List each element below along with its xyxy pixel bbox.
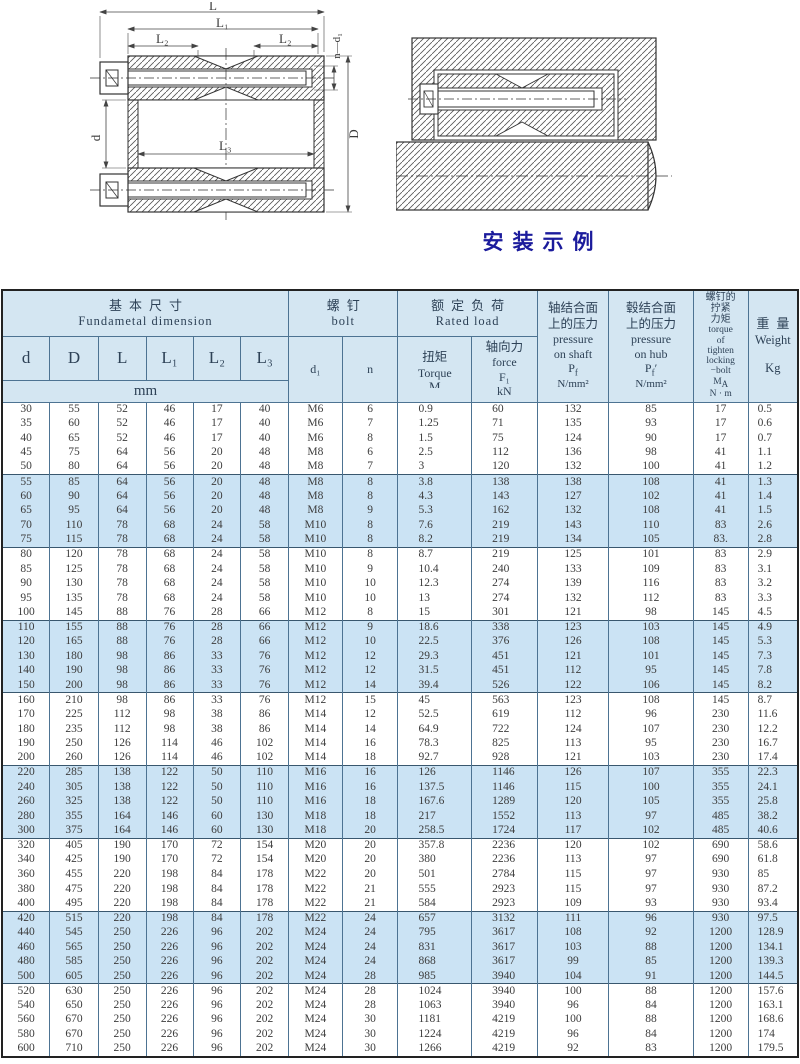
cell: 18 (342, 751, 398, 766)
cell: 560 (2, 1013, 50, 1028)
cell: 225 (50, 707, 99, 722)
cell: 80 (2, 547, 50, 562)
cell: 690 (693, 853, 748, 868)
cell: 145 (693, 606, 748, 621)
cell: 1.1 (748, 446, 798, 461)
cell: 2.8 (748, 533, 798, 548)
cell: M14 (289, 722, 343, 737)
cell: 160 (2, 693, 50, 708)
cell: 501 (398, 868, 472, 883)
cell: 30 (2, 402, 50, 417)
cell: 202 (241, 926, 289, 941)
cell: 202 (241, 940, 289, 955)
cell: 320 (2, 838, 50, 853)
cell: 3940 (472, 998, 538, 1013)
cell: 5.3 (398, 504, 472, 519)
cell: 985 (398, 969, 472, 984)
cell: 3132 (472, 911, 538, 926)
cell: 440 (2, 926, 50, 941)
cell: 64 (98, 489, 146, 504)
table-row: 40049522019884178M222158429231099393093.… (2, 897, 798, 912)
cell: 114 (146, 751, 193, 766)
table-row: 170225112983886M141252.56191129623011.6 (2, 707, 798, 722)
cell: 68 (146, 547, 193, 562)
cell: 33 (193, 649, 241, 664)
cell: 128.9 (748, 926, 798, 941)
cell: 226 (146, 969, 193, 984)
cell: 96 (193, 1028, 241, 1043)
cell: M12 (289, 664, 343, 679)
cell: 95 (2, 591, 50, 606)
cell: M22 (289, 882, 343, 897)
cell: 138 (98, 780, 146, 795)
cell: 90 (609, 431, 693, 446)
cell: 250 (98, 984, 146, 999)
cell: 226 (146, 955, 193, 970)
cell: 64 (98, 504, 146, 519)
cell: 112 (98, 707, 146, 722)
cell: 145 (693, 664, 748, 679)
cell: 1200 (693, 926, 748, 941)
cell: 138 (472, 475, 538, 490)
cell: 357.8 (398, 838, 472, 853)
cell: 110 (241, 766, 289, 781)
cell: 670 (50, 1028, 99, 1043)
cell: 35 (2, 417, 50, 432)
cell: 98 (146, 707, 193, 722)
cell: M20 (289, 838, 343, 853)
cell: 93 (609, 417, 693, 432)
cell: 33 (193, 678, 241, 693)
table-row: 7511578682458M1088.221913410583.2.8 (2, 533, 798, 548)
cell: 75 (2, 533, 50, 548)
cell: 48 (241, 504, 289, 519)
cell: 178 (241, 897, 289, 912)
cell: 96 (193, 1042, 241, 1057)
cell: 100 (537, 1013, 609, 1028)
cell: 2923 (472, 897, 538, 912)
cell: M16 (289, 766, 343, 781)
dim-label-L3: L₃ (219, 138, 231, 153)
cell: M22 (289, 911, 343, 926)
cell: 250 (98, 1013, 146, 1028)
cell: 88 (98, 620, 146, 635)
cell: 68 (146, 591, 193, 606)
cell: 46 (193, 751, 241, 766)
cell: M10 (289, 591, 343, 606)
cell: 1146 (472, 780, 538, 795)
cell: 3940 (472, 969, 538, 984)
cell: 174 (748, 1028, 798, 1043)
cell: 143 (472, 489, 538, 504)
cell: 132 (537, 402, 609, 417)
cell: M12 (289, 606, 343, 621)
cell: 3.3 (748, 591, 798, 606)
table-row: 16021098863376M1215455631231081458.7 (2, 693, 798, 708)
cell: 121 (537, 751, 609, 766)
cell: M24 (289, 926, 343, 941)
dim-label-d: d (88, 134, 103, 141)
table-row: 19025012611446102M141678.38251139523016.… (2, 737, 798, 752)
cell: 76 (241, 649, 289, 664)
table-row: 42051522019884178M222465731321119693097.… (2, 911, 798, 926)
cell: 112 (98, 722, 146, 737)
cell: 87.2 (748, 882, 798, 897)
cell: 98 (98, 693, 146, 708)
cell: 375 (50, 824, 99, 839)
cell: 7.8 (748, 664, 798, 679)
cell: 138 (98, 795, 146, 810)
cell: 103 (537, 940, 609, 955)
cell: 198 (146, 911, 193, 926)
table-row: 36045522019884178M222050127841159793085 (2, 868, 798, 883)
header-col-L: L (98, 336, 146, 380)
cell: 92 (609, 926, 693, 941)
cell: 102 (609, 824, 693, 839)
cell: 565 (50, 940, 99, 955)
cell: 22.3 (748, 766, 798, 781)
cell: 202 (241, 955, 289, 970)
cell: 41 (693, 446, 748, 461)
table-row: 52063025022696202M2428102439401008812001… (2, 984, 798, 999)
cell: 110 (609, 518, 693, 533)
cell: 28 (342, 969, 398, 984)
cell: 122 (146, 795, 193, 810)
cell: 1224 (398, 1028, 472, 1043)
cell: M8 (289, 504, 343, 519)
cell: 98 (98, 678, 146, 693)
cell: 124 (537, 431, 609, 446)
cell: 137.5 (398, 780, 472, 795)
cell: 52.5 (398, 707, 472, 722)
cell: 3.8 (398, 475, 472, 490)
cell: 0.9 (398, 402, 472, 417)
cell: 83 (693, 591, 748, 606)
cell: 250 (98, 940, 146, 955)
cell: 17 (193, 431, 241, 446)
cell: 1552 (472, 809, 538, 824)
cell: 219 (472, 518, 538, 533)
cell: 48 (241, 489, 289, 504)
cell: 88 (98, 606, 146, 621)
cell: 76 (241, 664, 289, 679)
cell: 6 (342, 402, 398, 417)
cell: 108 (609, 635, 693, 650)
cell: M10 (289, 518, 343, 533)
cell: 17.4 (748, 751, 798, 766)
cell: 710 (50, 1042, 99, 1057)
cell: 102 (241, 737, 289, 752)
cell: 123 (537, 693, 609, 708)
cell: 144.5 (748, 969, 798, 984)
cell: 68 (146, 577, 193, 592)
cell: 122 (537, 678, 609, 693)
cell: 831 (398, 940, 472, 955)
cell: 20 (342, 838, 398, 853)
cell: 120 (472, 460, 538, 475)
cell: 8 (342, 606, 398, 621)
cell: 868 (398, 955, 472, 970)
cell: 126 (537, 766, 609, 781)
cell: 226 (146, 1042, 193, 1057)
cell: 30 (342, 1042, 398, 1057)
table-row: 457564562048M862.511213698411.1 (2, 446, 798, 461)
cell: 133 (537, 562, 609, 577)
cell: 110 (2, 620, 50, 635)
table-row: 24030513812250110M1616137.51146115100355… (2, 780, 798, 795)
cell: M24 (289, 969, 343, 984)
cell: 75 (472, 431, 538, 446)
cell: 1063 (398, 998, 472, 1013)
cell: 45 (398, 693, 472, 708)
cell: 28 (193, 606, 241, 621)
cell: 78 (98, 547, 146, 562)
cell: 226 (146, 984, 193, 999)
cell: 134.1 (748, 940, 798, 955)
cell: M18 (289, 824, 343, 839)
cell: M22 (289, 897, 343, 912)
cell: 84 (609, 998, 693, 1013)
dim-label-L2-left: L₂ (156, 31, 168, 46)
cell: 12.2 (748, 722, 798, 737)
cell: 220 (98, 882, 146, 897)
cell: 64 (98, 460, 146, 475)
cell: 460 (2, 940, 50, 955)
table-row: 609064562048M884.3143127102411.4 (2, 489, 798, 504)
cell: 93 (609, 897, 693, 912)
table-row: 9013078682458M101012.3274139116833.2 (2, 577, 798, 592)
cell: 76 (146, 620, 193, 635)
cell: 20 (342, 868, 398, 883)
cell: 24.1 (748, 780, 798, 795)
cell: 17 (693, 431, 748, 446)
cell: 7.3 (748, 649, 798, 664)
cell: 8.7 (398, 547, 472, 562)
cell: 7.6 (398, 518, 472, 533)
cell: 143 (537, 518, 609, 533)
cell: 690 (693, 838, 748, 853)
cell: 2.6 (748, 518, 798, 533)
cell: 170 (2, 707, 50, 722)
cell: 48 (241, 475, 289, 490)
cell: M16 (289, 780, 343, 795)
cell: 515 (50, 911, 99, 926)
table-row: 508064562048M873120132100411.2 (2, 460, 798, 475)
cell: M8 (289, 460, 343, 475)
cell: 145 (693, 620, 748, 635)
header-col-L1: L₁ (146, 336, 193, 380)
cell: 0.6 (748, 417, 798, 432)
cell: 88 (609, 940, 693, 955)
cell: M10 (289, 577, 343, 592)
header-basic-dimension: 基本尺寸 Fundametal dimension (2, 290, 289, 336)
cell: 420 (2, 911, 50, 926)
cell: 115 (50, 533, 99, 548)
cell: 88 (609, 1013, 693, 1028)
header-col-n: n (342, 336, 398, 402)
cell: 135 (537, 417, 609, 432)
cell: 83. (693, 533, 748, 548)
cell: 7 (342, 417, 398, 432)
cell: 202 (241, 1013, 289, 1028)
cell: 90 (2, 577, 50, 592)
cell: 274 (472, 577, 538, 592)
cell: 24 (193, 547, 241, 562)
cell: 58.6 (748, 838, 798, 853)
cell: 41 (693, 504, 748, 519)
cell: 97 (609, 882, 693, 897)
cell: 8 (342, 547, 398, 562)
table-row: 28035516414660130M181821715521139748538.… (2, 809, 798, 824)
cell: 178 (241, 911, 289, 926)
cell: 340 (2, 853, 50, 868)
cell: 22.5 (398, 635, 472, 650)
cell: M6 (289, 431, 343, 446)
cell: 230 (693, 751, 748, 766)
cell: 12 (342, 649, 398, 664)
table-row: 9513578682458M101013274132112833.3 (2, 591, 798, 606)
header-col-D: D (50, 336, 99, 380)
cell: 60 (2, 489, 50, 504)
cell: 10.4 (398, 562, 472, 577)
cell: 8.7 (748, 693, 798, 708)
cell: 4.3 (398, 489, 472, 504)
cell: 3 (398, 460, 472, 475)
cell: 274 (472, 591, 538, 606)
cell: 48 (241, 460, 289, 475)
cell: 1289 (472, 795, 538, 810)
cell: 110 (50, 518, 99, 533)
cell: 98 (609, 606, 693, 621)
table-row: 60071025022696202M2430126642199283120017… (2, 1042, 798, 1057)
cell: 526 (472, 678, 538, 693)
cell: 112 (537, 707, 609, 722)
cell: 96 (193, 998, 241, 1013)
cell: 1200 (693, 940, 748, 955)
cell: 97 (609, 809, 693, 824)
cell: 16 (342, 737, 398, 752)
cell: 190 (50, 664, 99, 679)
cell: 56 (146, 460, 193, 475)
cell: 157.6 (748, 984, 798, 999)
cell: M8 (289, 446, 343, 461)
cell: 405 (50, 838, 99, 853)
cell: 78 (98, 591, 146, 606)
header-col-L2: L₂ (193, 336, 241, 380)
cell: 162 (472, 504, 538, 519)
cell: 66 (241, 620, 289, 635)
cell: 58 (241, 591, 289, 606)
cell: M24 (289, 998, 343, 1013)
cell: 930 (693, 897, 748, 912)
cell: 154 (241, 838, 289, 853)
cell: 600 (2, 1042, 50, 1057)
cell: 4.9 (748, 620, 798, 635)
table-row: 8512578682458M10910.4240133109833.1 (2, 562, 798, 577)
cell: 138 (537, 475, 609, 490)
cell: 8 (342, 431, 398, 446)
cell: 121 (537, 649, 609, 664)
cell: 109 (609, 562, 693, 577)
cell: 226 (146, 926, 193, 941)
cell: 139.3 (748, 955, 798, 970)
header-pressure-on-shaft: 轴结合面 上的压力 pressure on shaft Pf N/mm² (537, 290, 609, 402)
cell: 198 (146, 868, 193, 883)
cell: 96 (193, 926, 241, 941)
header-col-d: d (2, 336, 50, 380)
dim-label-L1: L₁ (216, 15, 228, 30)
cell: 220 (98, 911, 146, 926)
cell: 12.3 (398, 577, 472, 592)
cell: 217 (398, 809, 472, 824)
cell: 130 (2, 649, 50, 664)
cell: 80 (50, 460, 99, 475)
cell: 58 (241, 562, 289, 577)
cell: 64 (98, 475, 146, 490)
cell: 20 (342, 853, 398, 868)
table-row: 30037516414660130M1820258.51724117102485… (2, 824, 798, 839)
cell: 58 (241, 533, 289, 548)
cell: 1.3 (748, 475, 798, 490)
cell: M10 (289, 547, 343, 562)
cell: 24 (342, 940, 398, 955)
cell: 1200 (693, 998, 748, 1013)
cell: M10 (289, 562, 343, 577)
cell: 202 (241, 998, 289, 1013)
table-row: 11015588762866M12918.63381231031454.9 (2, 620, 798, 635)
cell: 130 (50, 577, 99, 592)
cell: 376 (472, 635, 538, 650)
cell: 56 (146, 504, 193, 519)
table-row: 34042519017072154M202038022361139769061.… (2, 853, 798, 868)
cell: M24 (289, 1042, 343, 1057)
cell: 52 (98, 402, 146, 417)
cell: 100 (609, 780, 693, 795)
cell: 163.1 (748, 998, 798, 1013)
cell: 104 (537, 969, 609, 984)
cell: 230 (693, 707, 748, 722)
cell: M24 (289, 1013, 343, 1028)
cell: 202 (241, 1028, 289, 1043)
cell: 4219 (472, 1013, 538, 1028)
cell: 68 (146, 562, 193, 577)
cell: 145 (693, 635, 748, 650)
cell: 28 (342, 984, 398, 999)
cell: 24 (342, 926, 398, 941)
cell: 86 (241, 707, 289, 722)
cell: 116 (609, 577, 693, 592)
cell: 46 (146, 402, 193, 417)
cell: 130 (241, 824, 289, 839)
cell: 3617 (472, 940, 538, 955)
cell: 52 (98, 431, 146, 446)
cell: 400 (2, 897, 50, 912)
cell: 97 (609, 853, 693, 868)
cell: 1200 (693, 1013, 748, 1028)
cell: 280 (2, 809, 50, 824)
cell: 455 (50, 868, 99, 883)
cell: 100 (537, 984, 609, 999)
cell: 235 (50, 722, 99, 737)
cell: 14 (342, 678, 398, 693)
header-unit-mm: mm (2, 380, 289, 402)
cell: 10 (342, 577, 398, 592)
cell: 30 (342, 1028, 398, 1043)
cell: 167.6 (398, 795, 472, 810)
cell: 30 (342, 1013, 398, 1028)
cell: 20 (193, 446, 241, 461)
cell: 83 (693, 547, 748, 562)
